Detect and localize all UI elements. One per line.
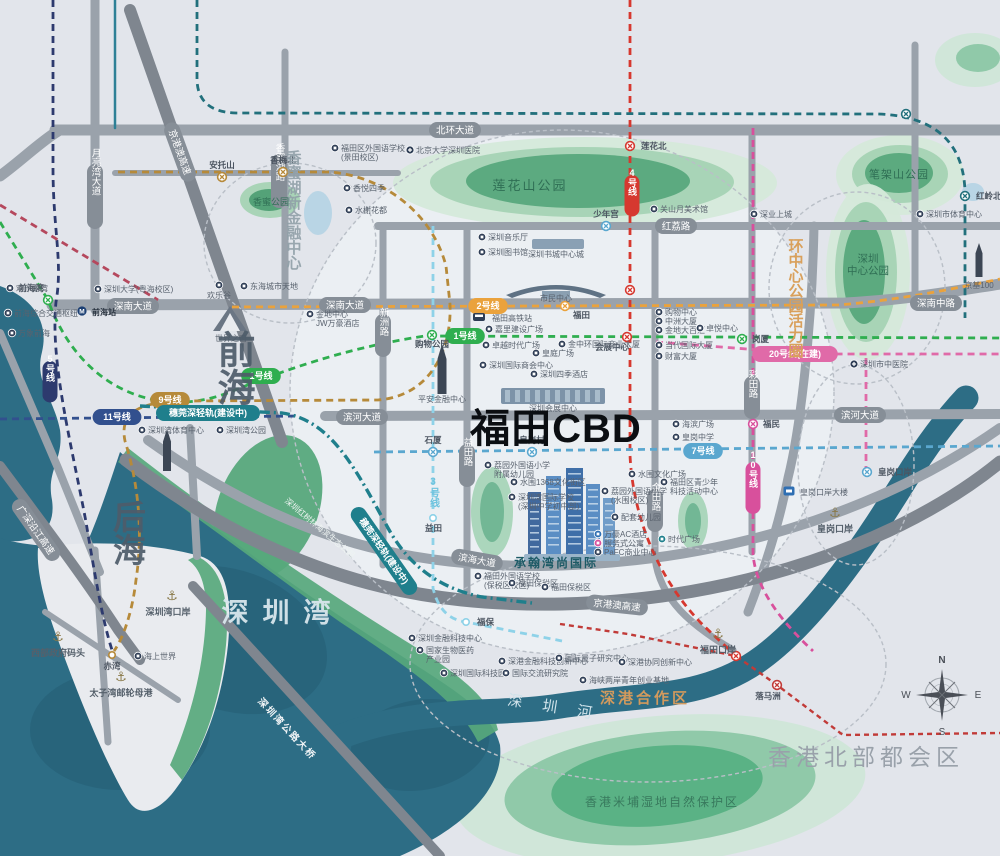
compass-east-label: E <box>975 690 982 701</box>
metro-badge-6: 7号线 <box>683 443 723 459</box>
poi-label: 京基100 <box>964 280 994 290</box>
poi-label: 平安金融中心 <box>418 394 466 404</box>
project-towers-icon-t1 <box>546 476 561 554</box>
svg-text:9号线: 9号线 <box>158 394 181 405</box>
port-label: 太子湾邮轮母港 <box>88 687 153 698</box>
poi-label: 服务式公寓 <box>604 538 644 548</box>
poi-1: 前海综合交通枢纽 <box>4 308 78 318</box>
poi-label: 欢乐谷 <box>207 290 231 300</box>
svg-text:2号线: 2号线 <box>476 300 499 311</box>
poi-label: 福田区青少年科技活动中心 <box>670 477 718 496</box>
poi-label: 深圳湾公园 <box>226 425 266 435</box>
poi-label: 深圳书城中心城 <box>528 249 584 259</box>
poi-label: 财富大厦 <box>665 351 697 361</box>
binhe-avenue <box>325 414 1000 416</box>
metro-badge-1: 1号线 <box>445 328 485 344</box>
poi-16: 市民中心 <box>540 293 572 303</box>
label-shenzhen-bay: 深圳湾 <box>222 597 345 628</box>
poi-12: 北京大学深圳医院 <box>406 145 480 155</box>
station-9-marker: 岗厦 <box>738 334 770 344</box>
book-city-icon <box>532 239 584 249</box>
poi-label: 北京大学深圳医院 <box>416 145 480 155</box>
poi-label: 当代国际大厦 <box>665 340 713 350</box>
poi-label: 卓悦中心 <box>706 323 738 333</box>
svg-text:1号线: 1号线 <box>453 330 476 341</box>
station-dot <box>430 515 436 521</box>
poi-label: 福田保税区 <box>551 582 591 592</box>
poi-label: 深港协同创新中心 <box>628 657 692 667</box>
poi-label: 深圳市中医院 <box>860 359 908 369</box>
poi-label: 购物中心 <box>665 307 697 317</box>
poi-label: 卓越时代广场 <box>492 340 540 350</box>
station-label: 益田 <box>425 523 442 533</box>
station-14-marker: 福保 <box>463 617 495 627</box>
road-label-4: 深南中路 <box>910 295 962 311</box>
station-20 <box>902 110 911 119</box>
svg-text:深南大道: 深南大道 <box>114 301 153 313</box>
poi-label: 深圳国际商会中心 <box>489 360 553 370</box>
cbd-park-west-in <box>480 482 504 542</box>
poi-label: 深圳市体育中心 <box>926 209 982 219</box>
station-label: 皇岗口岸 <box>878 467 913 477</box>
poi-label: 深圳大学(粤海校区) <box>104 284 174 294</box>
poi-label: 水围1368文化街区 <box>520 477 586 487</box>
poi-label: 前海站 <box>92 307 116 317</box>
station-label: 少年宫 <box>592 209 619 219</box>
label-futian-cbd: 福田CBD <box>469 407 642 451</box>
poi-label: 金中环国际商业大厦 <box>568 339 640 349</box>
poi-20: 京基100 <box>964 280 994 290</box>
port-label: 福田口岸 <box>699 644 736 655</box>
poi-label: 深圳图书馆 <box>488 247 528 257</box>
xiangmi-lake <box>304 191 332 235</box>
poi-label: 皇岗口岸大楼 <box>800 487 848 497</box>
poi-label: 深圳国际科技园 <box>450 668 506 678</box>
station-label: 福保 <box>476 617 495 627</box>
poi-label: 东海城市天地 <box>250 281 298 291</box>
corner-ne-green-in <box>956 44 1000 72</box>
road-label-0: 北环大道 <box>429 122 481 138</box>
station-label: 福民 <box>762 419 780 429</box>
poi-label: 皇庭广场 <box>542 348 574 358</box>
poi-53: 深圳国际科技园 <box>440 668 506 678</box>
poi-19: 深圳市体育中心 <box>916 209 982 219</box>
anchor-icon: ⚓ <box>52 629 64 644</box>
poi-label: 深圳四季酒店 <box>540 369 588 379</box>
poi-label: 深圳湾体育中心 <box>148 425 204 435</box>
label-lianhuashan-park: 莲花山公园 <box>492 178 567 193</box>
poi-label: 深业上城 <box>760 209 792 219</box>
poi-label: 万象前海 <box>18 328 50 338</box>
station-19-marker: 红岭北 <box>961 191 1000 201</box>
poi-label: 深圳金融科技中心 <box>418 633 482 643</box>
poi-label: 皇岗中学 <box>682 432 714 442</box>
road-label-6: 滨河大道 <box>834 407 886 423</box>
svg-text:滨河大道: 滨河大道 <box>841 410 880 422</box>
poi-48: PaFC商业中心 <box>594 547 656 557</box>
label-bijiashan-park: 笔架山公园 <box>869 167 929 181</box>
cbd-park-east-in <box>685 503 701 539</box>
map-svg: 北环大道红荔路深南大道深南大道深南中路滨河大道滨河大道滨海大道京港澳高速京港澳高… <box>0 0 1000 856</box>
poi-4: 深圳湾体育中心 <box>138 425 204 435</box>
poi-label: 万豪AC酒店 <box>604 529 647 539</box>
road-label-1: 红荔路 <box>655 218 697 234</box>
label-houhai: 后海 <box>109 500 147 566</box>
metro-badge-9: 11号线 <box>93 409 142 425</box>
svg-text:3号线: 3号线 <box>428 477 440 509</box>
poi-26: 深圳国际商会中心 <box>479 360 553 370</box>
svg-text:深南中路: 深南中路 <box>917 298 956 310</box>
poi-label: 前海综合交通枢纽 <box>14 308 78 318</box>
metro-badge-11: 穗莞深轻轨(建设中) <box>156 405 260 421</box>
svg-text:5号线: 5号线 <box>45 354 55 383</box>
station-label: 红岭北 <box>976 191 1000 201</box>
station-label: 岗厦 <box>752 334 770 344</box>
svg-text:红荔路: 红荔路 <box>662 221 691 233</box>
svg-text:新洲路: 新洲路 <box>378 307 390 337</box>
poi-58: 海峡两岸青年创业基地 <box>579 675 669 685</box>
poi-label: 中洲大厦 <box>665 316 697 326</box>
poi-label: 海滨广场 <box>682 419 714 429</box>
svg-text:11号线: 11号线 <box>103 411 131 422</box>
poi-label: PaFC商业中心 <box>604 547 656 557</box>
anchor-icon: ⚓ <box>712 626 724 641</box>
station-dot <box>463 619 469 625</box>
poi-label: 嘉里建设广场 <box>495 324 543 334</box>
anchor-icon: ⚓ <box>829 505 841 520</box>
poi-label: 国际交流研究院 <box>512 668 568 678</box>
svg-text:10号线: 10号线 <box>748 450 758 489</box>
poi-label: 海上世界 <box>144 651 176 661</box>
poi-15: 深圳书城中心城 <box>528 249 584 259</box>
anchor-icon: ⚓ <box>115 669 127 684</box>
station-18-marker: 皇岗口岸 <box>863 467 913 477</box>
poi-39: 金中环国际商业大厦 <box>558 339 640 349</box>
poi-41: 水围1368文化街区 <box>510 477 586 487</box>
poi-57: 深港协同创新中心 <box>618 657 692 667</box>
label-sz-hk-cooperation-zone: 深港合作区 <box>600 689 690 707</box>
poi-label: 配套幼儿园 <box>621 512 661 522</box>
station-dot <box>109 652 115 658</box>
poi-54: 国际交流研究院 <box>502 668 568 678</box>
station-label: 落马洲 <box>755 691 781 701</box>
label-xiangmi-park: 香蜜公园 <box>253 196 289 207</box>
svg-text:滨河大道: 滨河大道 <box>343 412 382 424</box>
station-5 <box>626 286 635 295</box>
compass-south-label: S <box>939 727 946 738</box>
port-label: 西部政府码头 <box>31 647 85 658</box>
poi-42: 深圳湾国际学校(深圳中学初中部) <box>508 492 579 511</box>
poi-label: 时代广场 <box>668 534 700 544</box>
station-label: 安托山 <box>209 160 235 170</box>
poi-label: 欢乐港湾 <box>16 283 48 293</box>
svg-text:彩田路: 彩田路 <box>747 370 759 399</box>
map-canvas: 北环大道红荔路深南大道深南大道深南中路滨河大道滨河大道滨海大道京港澳高速京港澳高… <box>0 0 1000 856</box>
poi-3: 深圳大学(粤海校区) <box>94 284 173 294</box>
anchor-icon: ⚓ <box>166 588 178 603</box>
label-hk-northern-metropolis: 香港北部都会区 <box>768 744 964 770</box>
svg-text:穗莞深轻轨(建设中): 穗莞深轻轨(建设中) <box>169 407 247 418</box>
poi-label: 市民中心 <box>540 293 572 303</box>
poi-label: 水榭花都 <box>355 205 387 215</box>
poi-label: 深圳音乐厅 <box>488 232 528 242</box>
station-4-marker: 莲花北 <box>626 141 667 151</box>
svg-text:4号线: 4号线 <box>627 168 637 197</box>
label-xiangmihu-financial-center: 香蜜湖新金融中心 <box>285 149 303 271</box>
label-project-name: 承翰湾尚国际 <box>514 555 598 570</box>
poi-61: M前海站 <box>77 306 116 317</box>
svg-text:北环大道: 北环大道 <box>436 125 475 137</box>
station-label: 福田 <box>572 310 590 320</box>
poi-label: 海峡两岸青年创业基地 <box>589 675 669 685</box>
port-label: 深圳湾口岸 <box>145 606 190 617</box>
poi-label: 香悦四季 <box>353 183 385 193</box>
metro-badge-3: 3号线 <box>428 477 440 509</box>
label-qianhai: 前海 <box>211 330 255 406</box>
station-label: 购物公园 <box>414 339 449 349</box>
road-label-5: 滨河大道 <box>336 409 388 425</box>
svg-text:7号线: 7号线 <box>691 445 714 456</box>
svg-text:M: M <box>79 308 84 315</box>
station-label: 莲花北 <box>641 141 667 151</box>
poi-label: 关山月美术馆 <box>660 204 708 214</box>
station-label: 石厦 <box>423 435 442 445</box>
station-12-marker: 福民 <box>749 419 780 429</box>
compass-north-label: N <box>938 655 945 666</box>
svg-text:月亮湾大道: 月亮湾大道 <box>90 148 102 196</box>
poi-label: 福田高铁站 <box>492 313 532 323</box>
poi-28: 平安金融中心 <box>418 394 466 404</box>
metro-badge-2: 2号线 <box>468 298 508 314</box>
compass-west-label: W <box>901 690 911 701</box>
port-label: 皇岗口岸 <box>817 523 853 534</box>
poi-label: 深圳湾国际学校(深圳中学初中部) <box>518 492 580 511</box>
label-central-park-vitality-circle: 环中心公园活力圈 <box>787 238 804 359</box>
label-mipu-wetland: 香港米埔湿地自然保护区 <box>585 794 739 809</box>
poi-51: 深圳金融科技中心 <box>408 633 482 643</box>
